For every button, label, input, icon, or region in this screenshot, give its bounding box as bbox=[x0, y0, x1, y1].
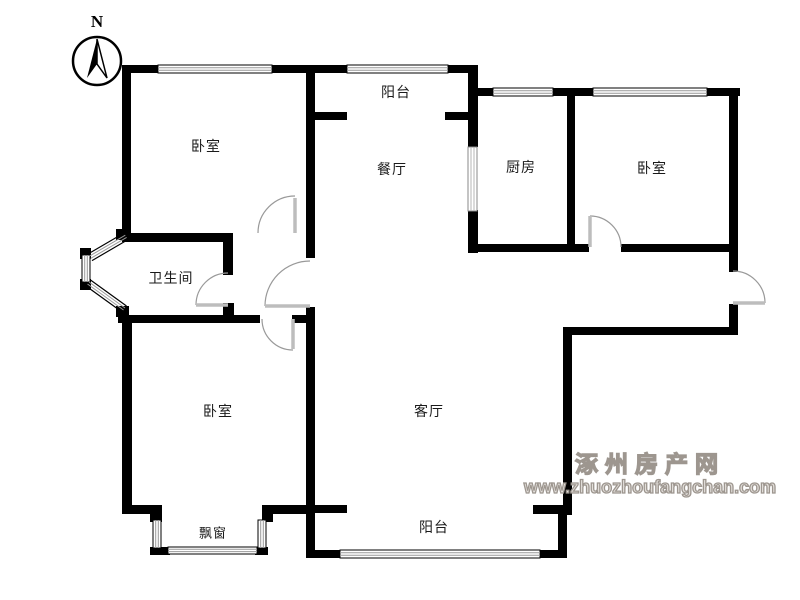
wall-segment bbox=[307, 550, 340, 558]
watermark-site-name: 涿州房产网 bbox=[522, 452, 778, 477]
door-bedroom-top-left bbox=[258, 196, 295, 233]
doors bbox=[196, 196, 765, 350]
compass-north-label: N bbox=[91, 12, 103, 32]
wall-segment bbox=[306, 505, 347, 513]
room-label-bathroom: 卫生间 bbox=[149, 268, 194, 288]
door-vestibule bbox=[265, 261, 310, 306]
wall-segment bbox=[478, 88, 494, 96]
wall-segment bbox=[262, 505, 273, 522]
door-bedroom-bottom-left bbox=[262, 319, 293, 350]
bay-window-glazing bbox=[86, 233, 128, 312]
kitchen-slider bbox=[468, 147, 477, 211]
wall-segment bbox=[223, 233, 233, 275]
wall-segment bbox=[150, 505, 162, 522]
room-label-kitchen: 厨房 bbox=[506, 157, 536, 177]
wall-segment bbox=[468, 65, 478, 147]
window bbox=[158, 65, 272, 73]
wall-segment bbox=[118, 315, 260, 323]
wall-segment bbox=[553, 88, 593, 96]
wall-segment bbox=[445, 112, 468, 120]
wall-segment bbox=[533, 505, 563, 514]
wall-segment bbox=[567, 95, 575, 252]
window bbox=[258, 520, 266, 548]
watermark: 涿州房产网 www.zhuozhoufangchan.com bbox=[522, 452, 778, 498]
room-label-balcony-bottom: 阳台 bbox=[419, 517, 449, 537]
window bbox=[153, 520, 161, 548]
door-bedroom-top-right bbox=[590, 216, 621, 247]
north-compass bbox=[73, 37, 121, 85]
wall-segment bbox=[563, 327, 738, 335]
room-label-balcony-top: 阳台 bbox=[381, 82, 411, 102]
wall-segment bbox=[122, 65, 131, 237]
wall-segment bbox=[122, 233, 228, 242]
window bbox=[347, 65, 448, 73]
window bbox=[168, 547, 257, 554]
room-label-bay-window: 飘窗 bbox=[199, 523, 227, 542]
room-label-bedroom-top-left: 卧室 bbox=[191, 136, 221, 156]
wall-segment bbox=[122, 315, 132, 514]
room-label-dining: 餐厅 bbox=[377, 159, 407, 179]
room-label-bedroom-bottom-left: 卧室 bbox=[203, 401, 233, 421]
wall-segment bbox=[306, 65, 315, 258]
door-bathroom bbox=[196, 273, 228, 305]
wall-segment bbox=[116, 306, 129, 317]
wall-segment bbox=[315, 112, 347, 120]
door-entry bbox=[733, 271, 765, 303]
room-label-living-room: 客厅 bbox=[414, 401, 444, 421]
floor-plan: N 卧室 阳台 餐厅 厨房 卧室 卫生间 卧室 客厅 飘窗 阳台 涿州房产网 w… bbox=[0, 0, 800, 600]
wall-segment bbox=[621, 244, 737, 252]
wall-segment bbox=[306, 307, 315, 558]
compass-needle-light bbox=[97, 39, 107, 78]
watermark-url: www.zhuozhoufangchan.com bbox=[522, 478, 778, 498]
window bbox=[593, 88, 707, 96]
room-label-bedroom-top-right: 卧室 bbox=[637, 158, 667, 178]
compass-needle-dark bbox=[87, 39, 97, 78]
window bbox=[82, 255, 90, 282]
wall-segment bbox=[540, 550, 567, 558]
window bbox=[493, 88, 553, 96]
window bbox=[340, 550, 540, 558]
